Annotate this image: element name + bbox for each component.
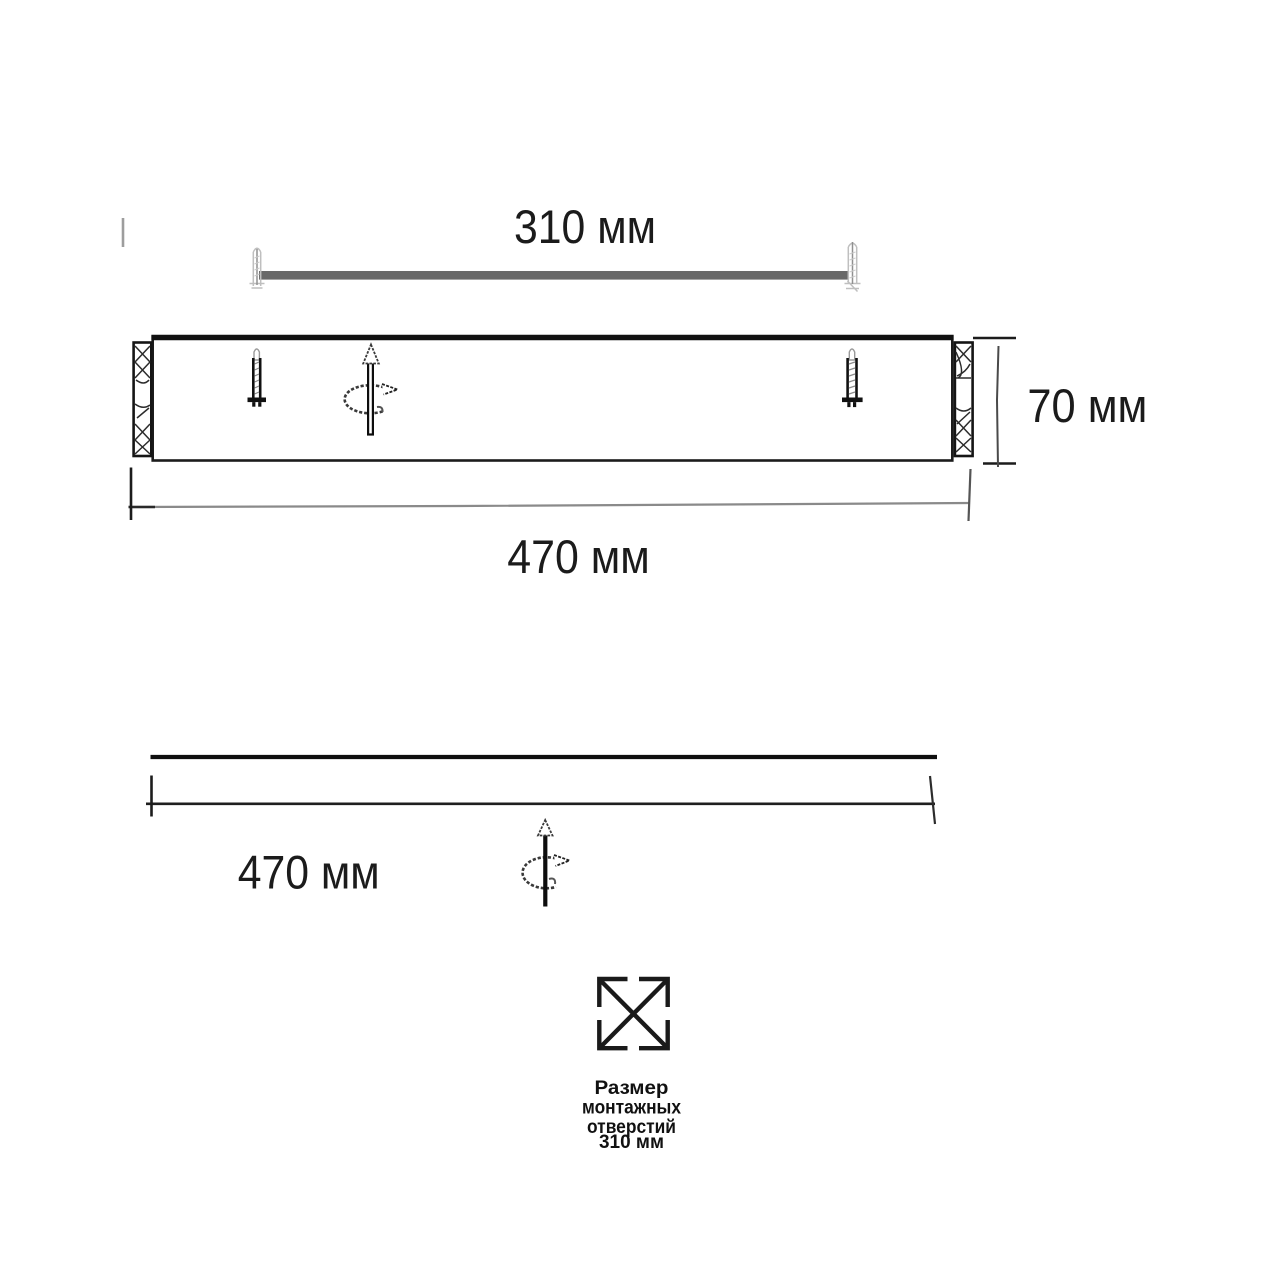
svg-text:310 мм: 310 мм: [514, 200, 656, 253]
svg-text:470 мм: 470 мм: [238, 846, 380, 899]
svg-text:310 мм: 310 мм: [599, 1131, 664, 1153]
svg-text:70 мм: 70 мм: [1027, 379, 1147, 432]
svg-text:470 мм: 470 мм: [507, 530, 650, 583]
